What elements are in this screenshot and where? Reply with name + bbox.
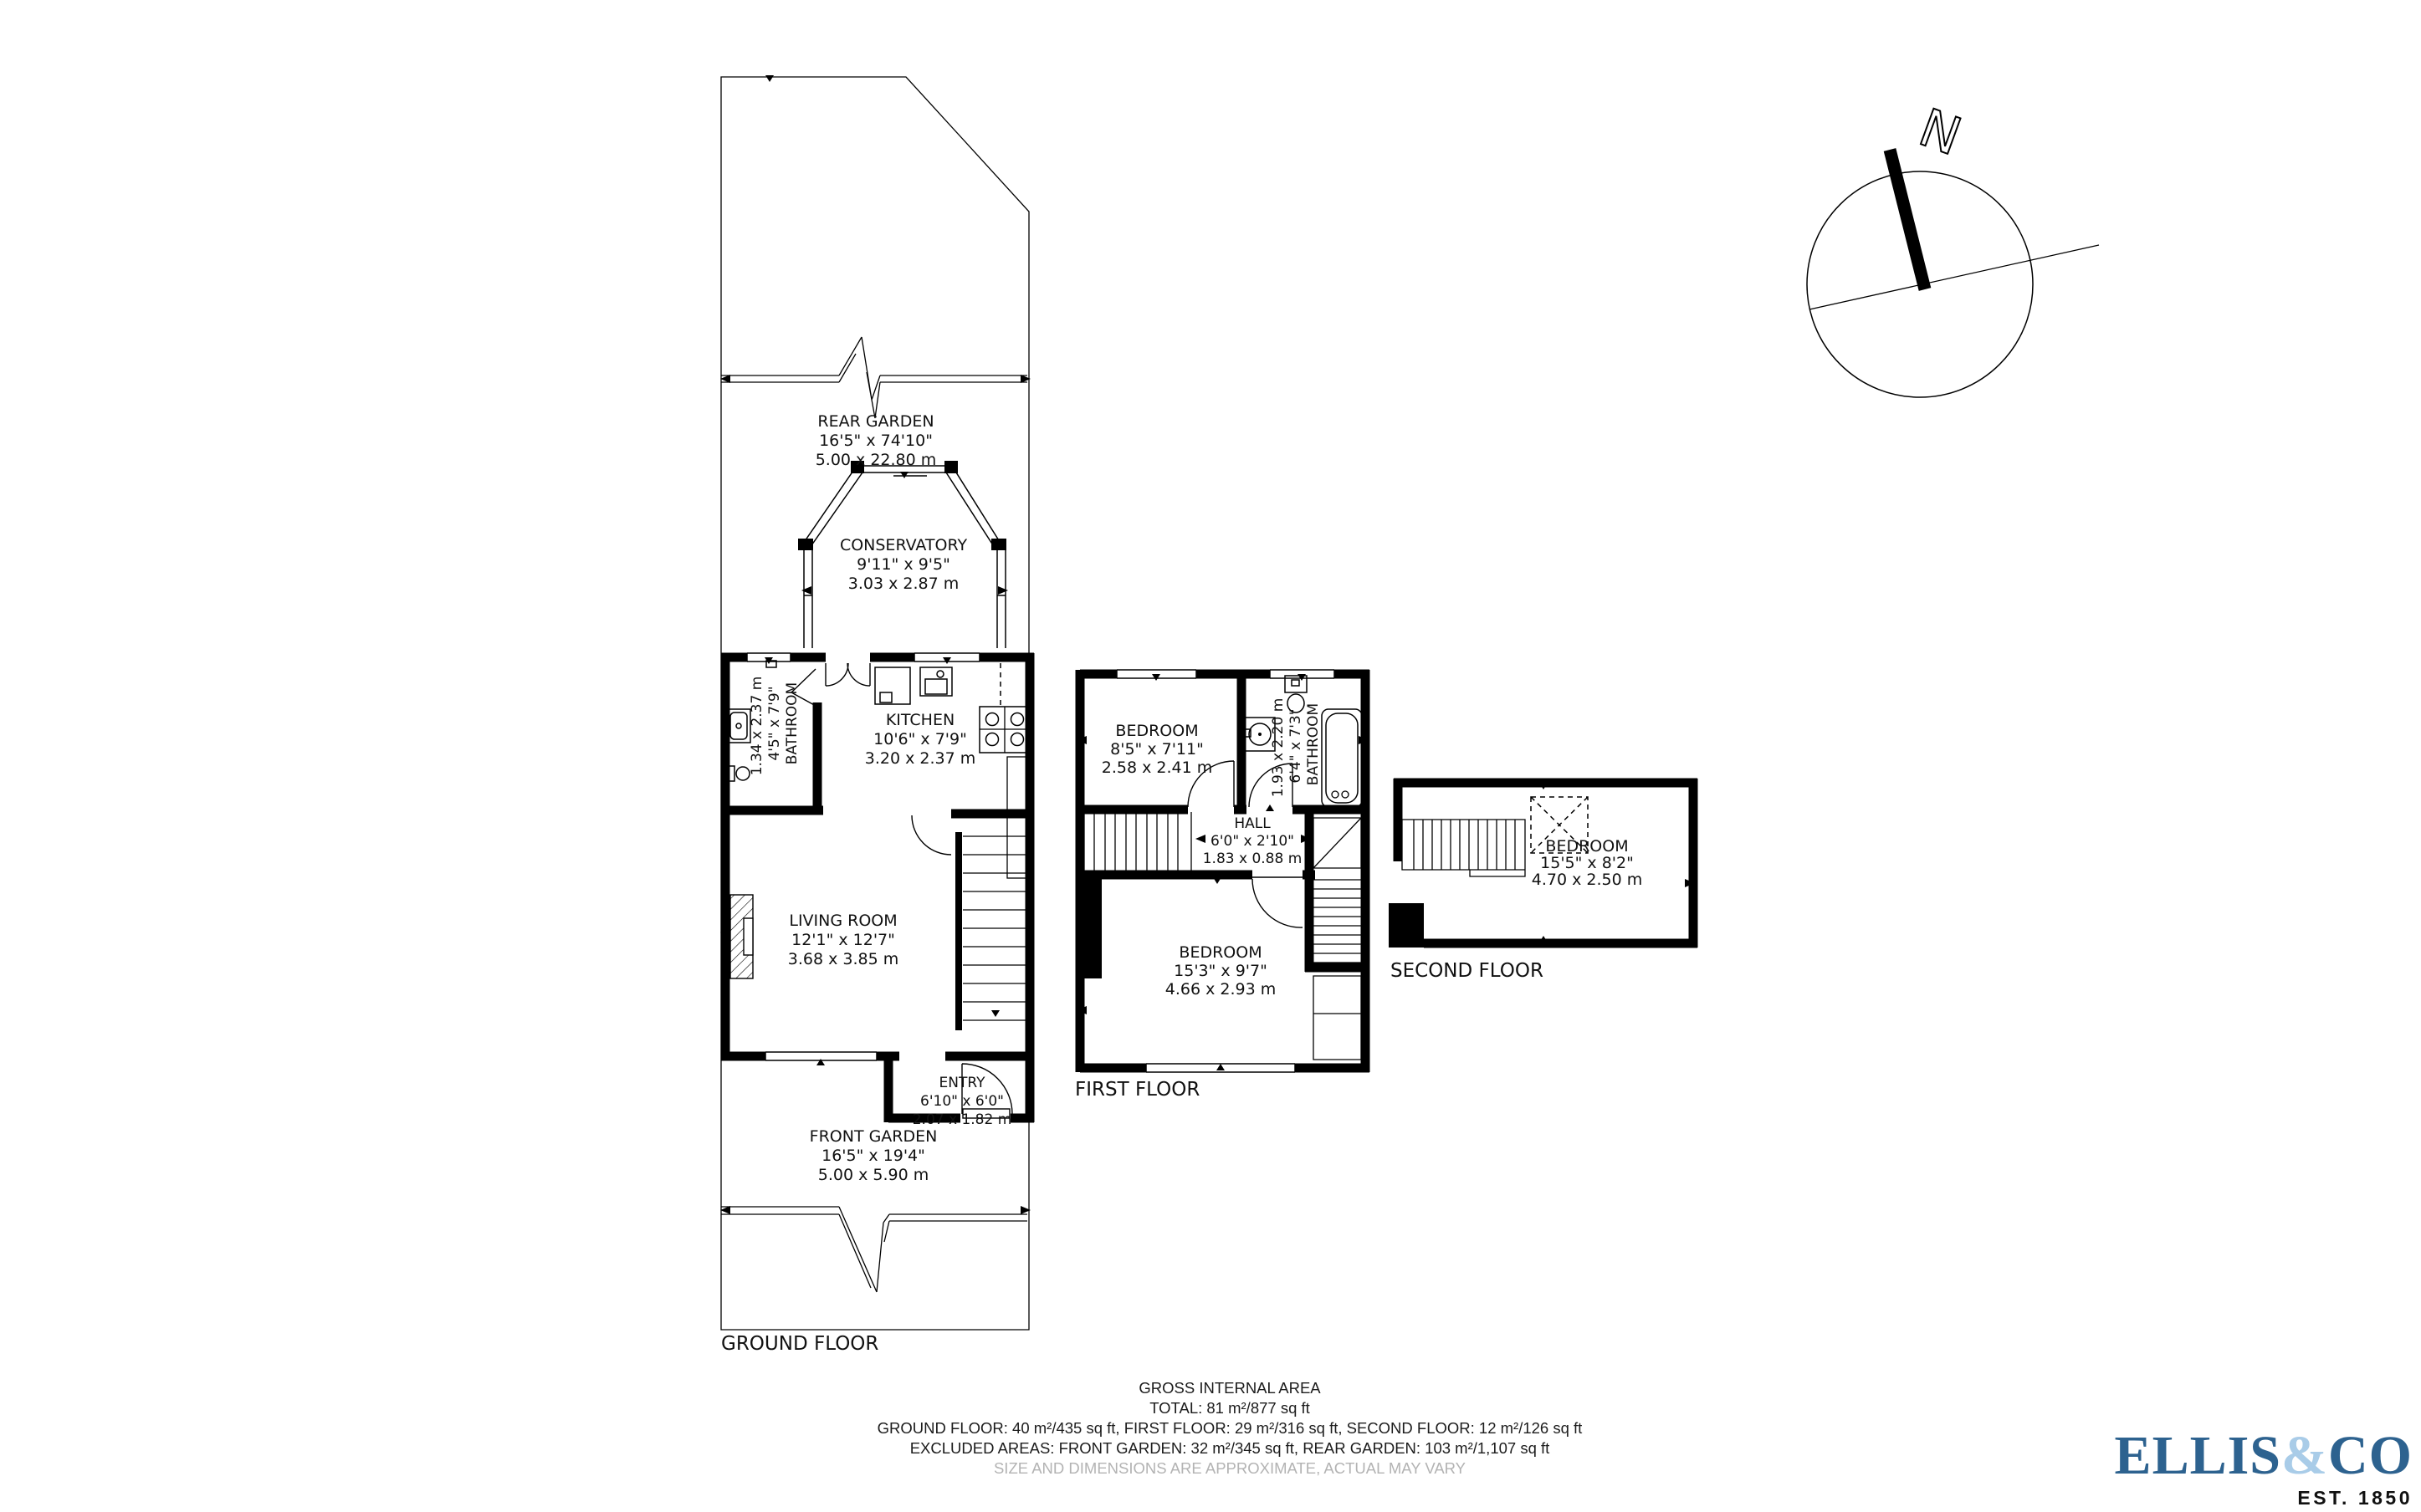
stair-cupboard <box>1313 976 1361 1060</box>
agency-logo: ELLIS&CO EST. 1850 <box>2115 1425 2413 1509</box>
ground-floor-plan: REAR GARDEN 16'5" x 74'10" 5.00 x 22.80 … <box>720 75 1034 1355</box>
room-name: LIVING ROOM <box>789 912 897 930</box>
room-imperial: 15'3" x 9'7" <box>1174 962 1267 980</box>
second-floor-title: SECOND FLOOR <box>1390 960 1543 982</box>
label-rear-garden: REAR GARDEN 16'5" x 74'10" 5.00 x 22.80 … <box>816 412 937 469</box>
second-floor-wall-block <box>1389 903 1424 948</box>
ground-dimension-markers <box>720 75 1031 1214</box>
bedroom-chimney <box>1080 876 1102 978</box>
label-conservatory: CONSERVATORY 9'11" x 9'5" 3.03 x 2.87 m <box>840 536 968 593</box>
room-metric: 2.58 x 2.41 m <box>1102 759 1212 777</box>
room-imperial: 16'5" x 19'4" <box>822 1147 925 1165</box>
room-metric: 1.93 x 2.20 m <box>1270 698 1287 798</box>
second-floor-plan: BEDROOM 15'5" x 8'2" 4.70 x 2.50 m SECON… <box>1389 779 1697 982</box>
conservatory-structure <box>798 461 1006 648</box>
floorplan-canvas: REAR GARDEN 16'5" x 74'10" 5.00 x 22.80 … <box>0 0 2421 1512</box>
room-metric: 3.20 x 2.37 m <box>865 749 975 768</box>
room-name: FRONT GARDEN <box>810 1127 938 1146</box>
label-ground-bathroom: BATHROOM 4'5" x 7'9" 1.34 x 2.37 m <box>749 677 801 776</box>
room-name: CONSERVATORY <box>840 536 968 554</box>
ground-floor-stairs <box>963 836 1026 1020</box>
first-floor-stairs <box>1313 880 1361 963</box>
label-kitchen: KITCHEN 10'6" x 7'9" 3.20 x 2.37 m <box>865 711 975 768</box>
room-name: KITCHEN <box>886 711 955 729</box>
area-summary: GROSS INTERNAL AREA TOTAL: 81 m²/877 sq … <box>878 1379 1583 1477</box>
kitchen-fixtures <box>875 663 1030 878</box>
room-name: BEDROOM <box>1115 722 1198 740</box>
north-label: N <box>1912 97 1969 167</box>
room-imperial: 12'1" x 12'7" <box>791 931 895 949</box>
room-metric: 5.00 x 5.90 m <box>818 1166 929 1184</box>
label-entry: ENTRY 6'10" x 6'0" 2.07 x 1.82 m <box>913 1075 1012 1128</box>
agency-logo-wordmark: ELLIS&CO <box>2115 1425 2413 1486</box>
room-metric: 4.66 x 2.93 m <box>1165 980 1276 999</box>
logo-ampersand: & <box>2281 1425 2328 1486</box>
room-imperial: 6'10" x 6'0" <box>920 1093 1004 1110</box>
first-floor-title: FIRST FLOOR <box>1075 1079 1200 1101</box>
room-imperial: 8'5" x 7'11" <box>1110 740 1204 759</box>
agency-logo-established: EST. 1850 <box>2297 1487 2413 1509</box>
room-imperial: 15'5" x 8'2" <box>1540 854 1634 872</box>
first-floor-plan: BEDROOM 8'5" x 7'11" 2.58 x 2.41 m BATHR… <box>1075 670 1369 1101</box>
label-living-room: LIVING ROOM 12'1" x 12'7" 3.68 x 3.85 m <box>788 912 898 968</box>
room-imperial: 4'5" x 7'9" <box>766 686 783 760</box>
summary-disclaimer: SIZE AND DIMENSIONS ARE APPROXIMATE, ACT… <box>994 1459 1466 1477</box>
label-second-bedroom: BEDROOM 15'5" x 8'2" 4.70 x 2.50 m <box>1532 837 1642 889</box>
room-name: BEDROOM <box>1179 943 1262 962</box>
logo-part-1: ELLIS <box>2115 1425 2281 1486</box>
summary-floors: GROUND FLOOR: 40 m²/435 sq ft, FIRST FLO… <box>878 1419 1583 1437</box>
stair-void <box>1313 818 1361 868</box>
room-name: ENTRY <box>939 1075 986 1091</box>
room-imperial: 16'5" x 74'10" <box>819 432 933 450</box>
room-name: BEDROOM <box>1545 837 1628 856</box>
room-metric: 4.70 x 2.50 m <box>1532 871 1642 889</box>
compass-needle <box>1890 150 1925 289</box>
room-metric: 3.03 x 2.87 m <box>848 575 959 593</box>
room-name: BATHROOM <box>1305 703 1322 785</box>
room-name: BATHROOM <box>784 682 801 764</box>
label-bedroom-2: BEDROOM 15'3" x 9'7" 4.66 x 2.93 m <box>1165 943 1276 999</box>
label-hall: HALL 6'0" x 2'10" 1.83 x 0.88 m <box>1203 815 1303 867</box>
room-imperial: 6'4" x 7'3" <box>1287 708 1304 783</box>
compass-north-icon: N <box>1807 97 2099 397</box>
compass-cross-line <box>1809 245 2099 309</box>
front-garden-break-line <box>721 1207 1027 1292</box>
room-name: HALL <box>1234 815 1271 832</box>
room-name: REAR GARDEN <box>817 412 934 431</box>
room-imperial: 10'6" x 7'9" <box>873 730 967 748</box>
second-floor-stairs <box>1402 820 1525 876</box>
rear-garden-break-line <box>721 337 1027 418</box>
room-metric: 5.00 x 22.80 m <box>816 451 937 469</box>
hall-stairs <box>1084 812 1191 871</box>
room-imperial: 6'0" x 2'10" <box>1210 833 1294 850</box>
summary-total: TOTAL: 81 m²/877 sq ft <box>1149 1399 1310 1417</box>
label-front-garden: FRONT GARDEN 16'5" x 19'4" 5.00 x 5.90 m <box>810 1127 938 1184</box>
room-metric: 1.34 x 2.37 m <box>749 677 765 776</box>
summary-excluded: EXCLUDED AREAS: FRONT GARDEN: 32 m²/345 … <box>910 1439 1550 1457</box>
logo-part-2: CO <box>2328 1425 2413 1486</box>
room-imperial: 9'11" x 9'5" <box>857 555 950 574</box>
label-bedroom-1: BEDROOM 8'5" x 7'11" 2.58 x 2.41 m <box>1102 722 1212 777</box>
living-room-chimney <box>730 895 753 978</box>
label-first-bathroom: BATHROOM 6'4" x 7'3" 1.93 x 2.20 m <box>1270 698 1322 798</box>
floorplan-page: REAR GARDEN 16'5" x 74'10" 5.00 x 22.80 … <box>0 0 2421 1512</box>
room-metric: 1.83 x 0.88 m <box>1203 850 1303 867</box>
room-metric: 3.68 x 3.85 m <box>788 950 898 968</box>
room-metric: 2.07 x 1.82 m <box>913 1111 1012 1128</box>
ground-floor-title: GROUND FLOOR <box>721 1333 878 1355</box>
summary-title: GROSS INTERNAL AREA <box>1139 1379 1321 1397</box>
